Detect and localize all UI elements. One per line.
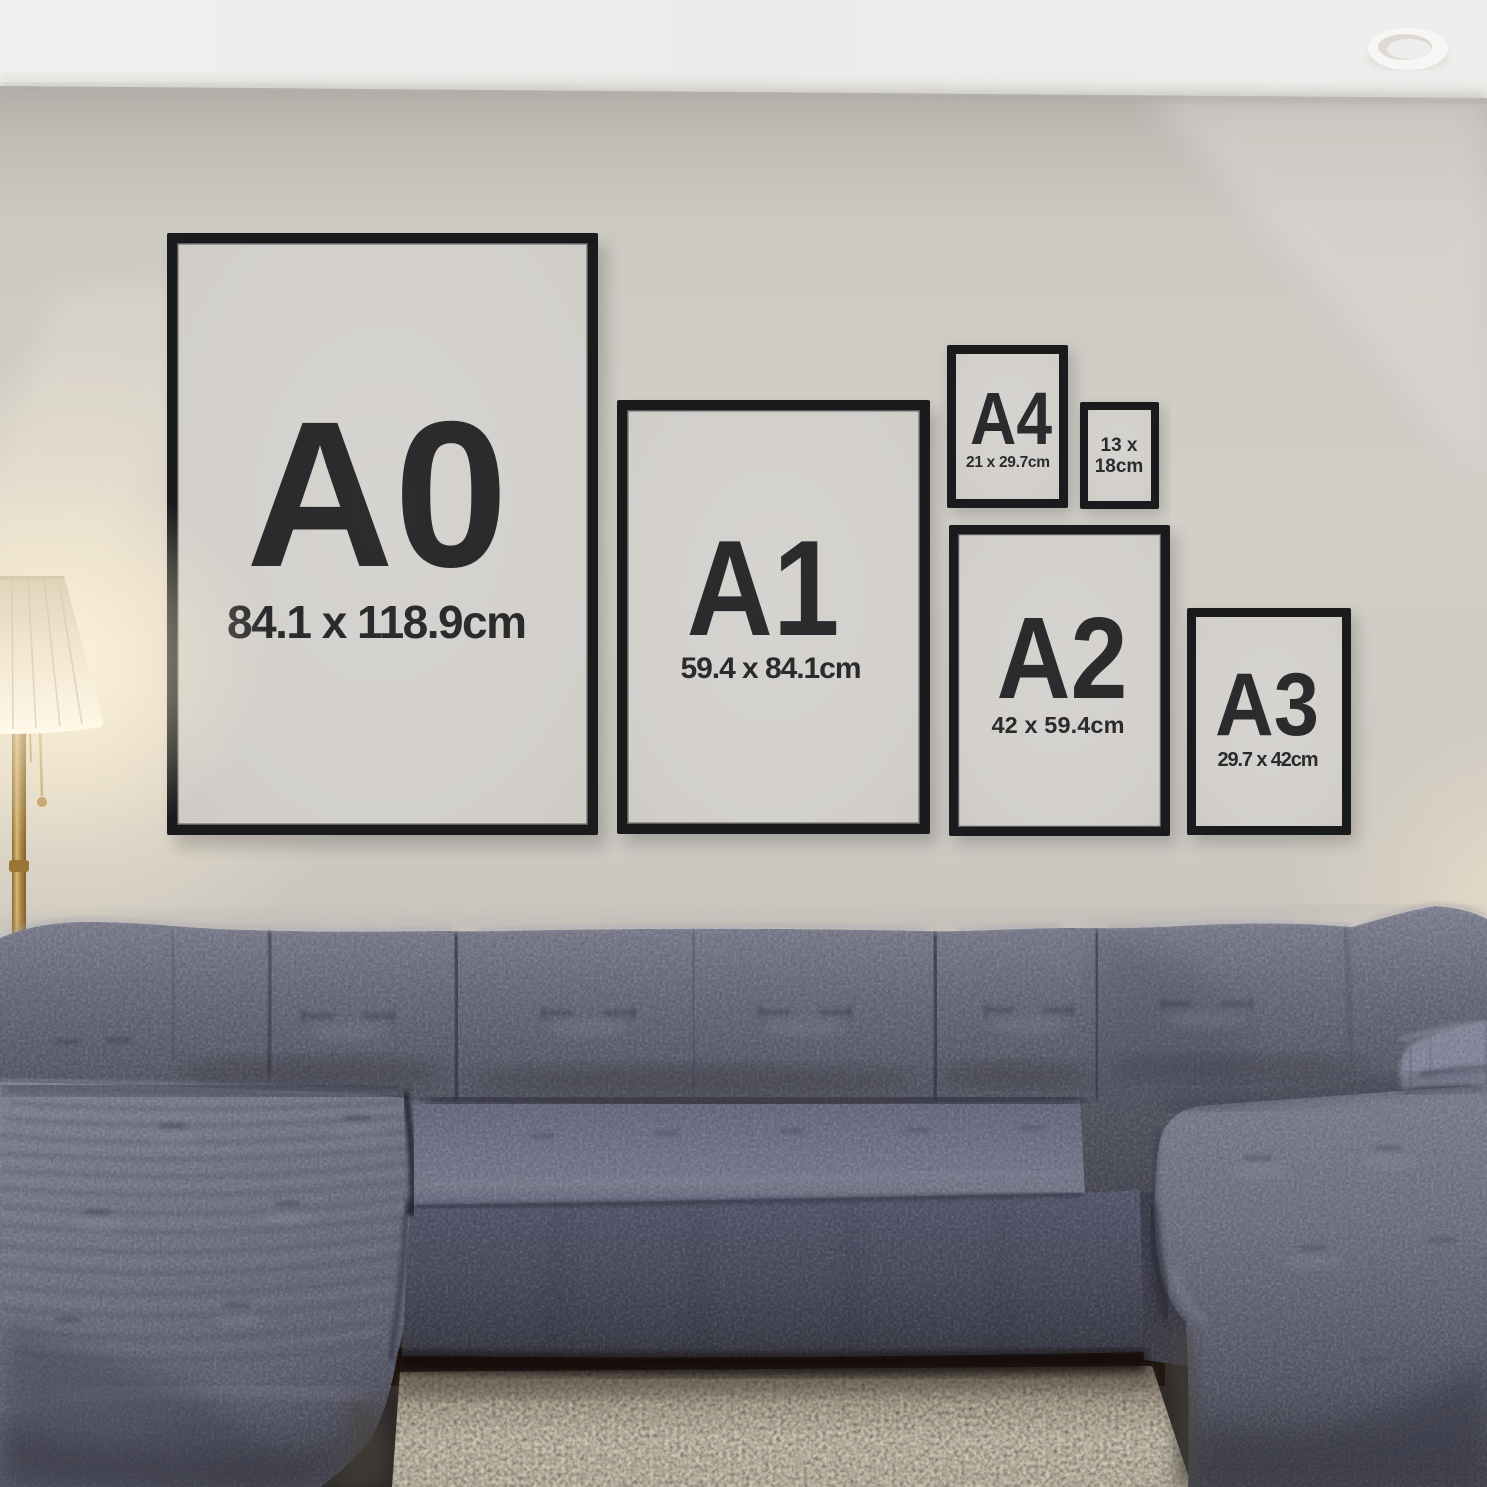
- svg-text:13 x: 13 x: [1101, 435, 1138, 456]
- svg-text:A0: A0: [246, 379, 508, 611]
- svg-text:59.4 x 84.1cm: 59.4 x 84.1cm: [681, 652, 862, 685]
- svg-text:A1: A1: [687, 512, 840, 664]
- svg-text:18cm: 18cm: [1095, 456, 1144, 477]
- svg-text:21 x 29.7cm: 21 x 29.7cm: [966, 454, 1050, 471]
- svg-text:84.1 x 118.9cm: 84.1 x 118.9cm: [227, 596, 527, 648]
- svg-text:A4: A4: [970, 377, 1052, 460]
- svg-text:29.7 x 42cm: 29.7 x 42cm: [1218, 749, 1319, 771]
- svg-text:A2: A2: [997, 593, 1128, 723]
- svg-text:A3: A3: [1215, 654, 1319, 754]
- svg-text:42 x 59.4cm: 42 x 59.4cm: [992, 712, 1125, 738]
